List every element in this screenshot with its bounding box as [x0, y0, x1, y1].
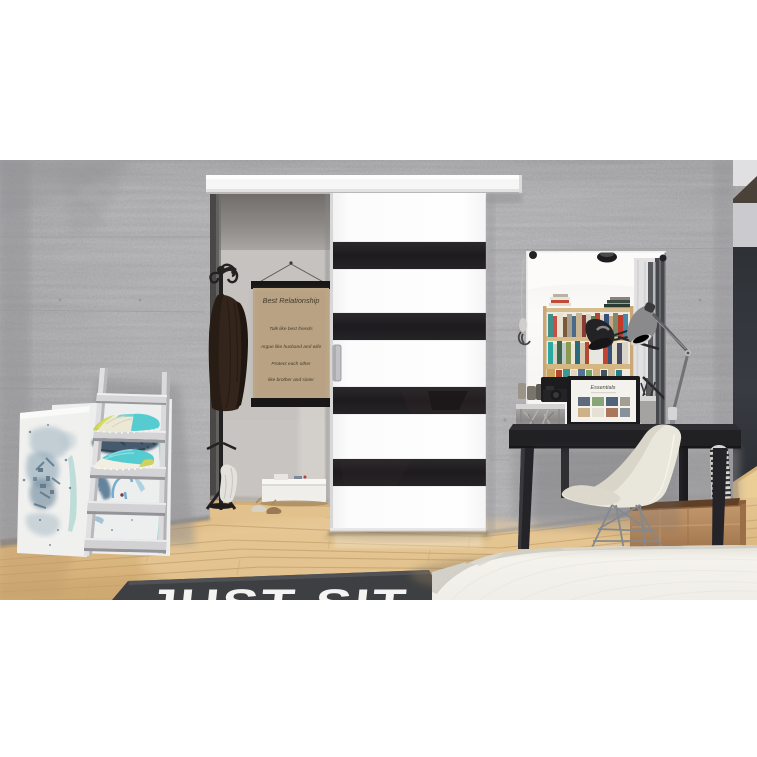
svg-text:JUST SIT: JUST SIT [144, 582, 411, 600]
svg-text:Argue like husband and wife: Argue like husband and wife [260, 344, 322, 350]
svg-text:like brother and sister: like brother and sister [268, 377, 314, 383]
svg-text:Essentials: Essentials [590, 385, 615, 391]
svg-text:Best Relationship: Best Relationship [263, 296, 320, 305]
svg-text:Talk like best friends: Talk like best friends [269, 326, 313, 332]
svg-text:Protect each other: Protect each other [271, 361, 311, 367]
